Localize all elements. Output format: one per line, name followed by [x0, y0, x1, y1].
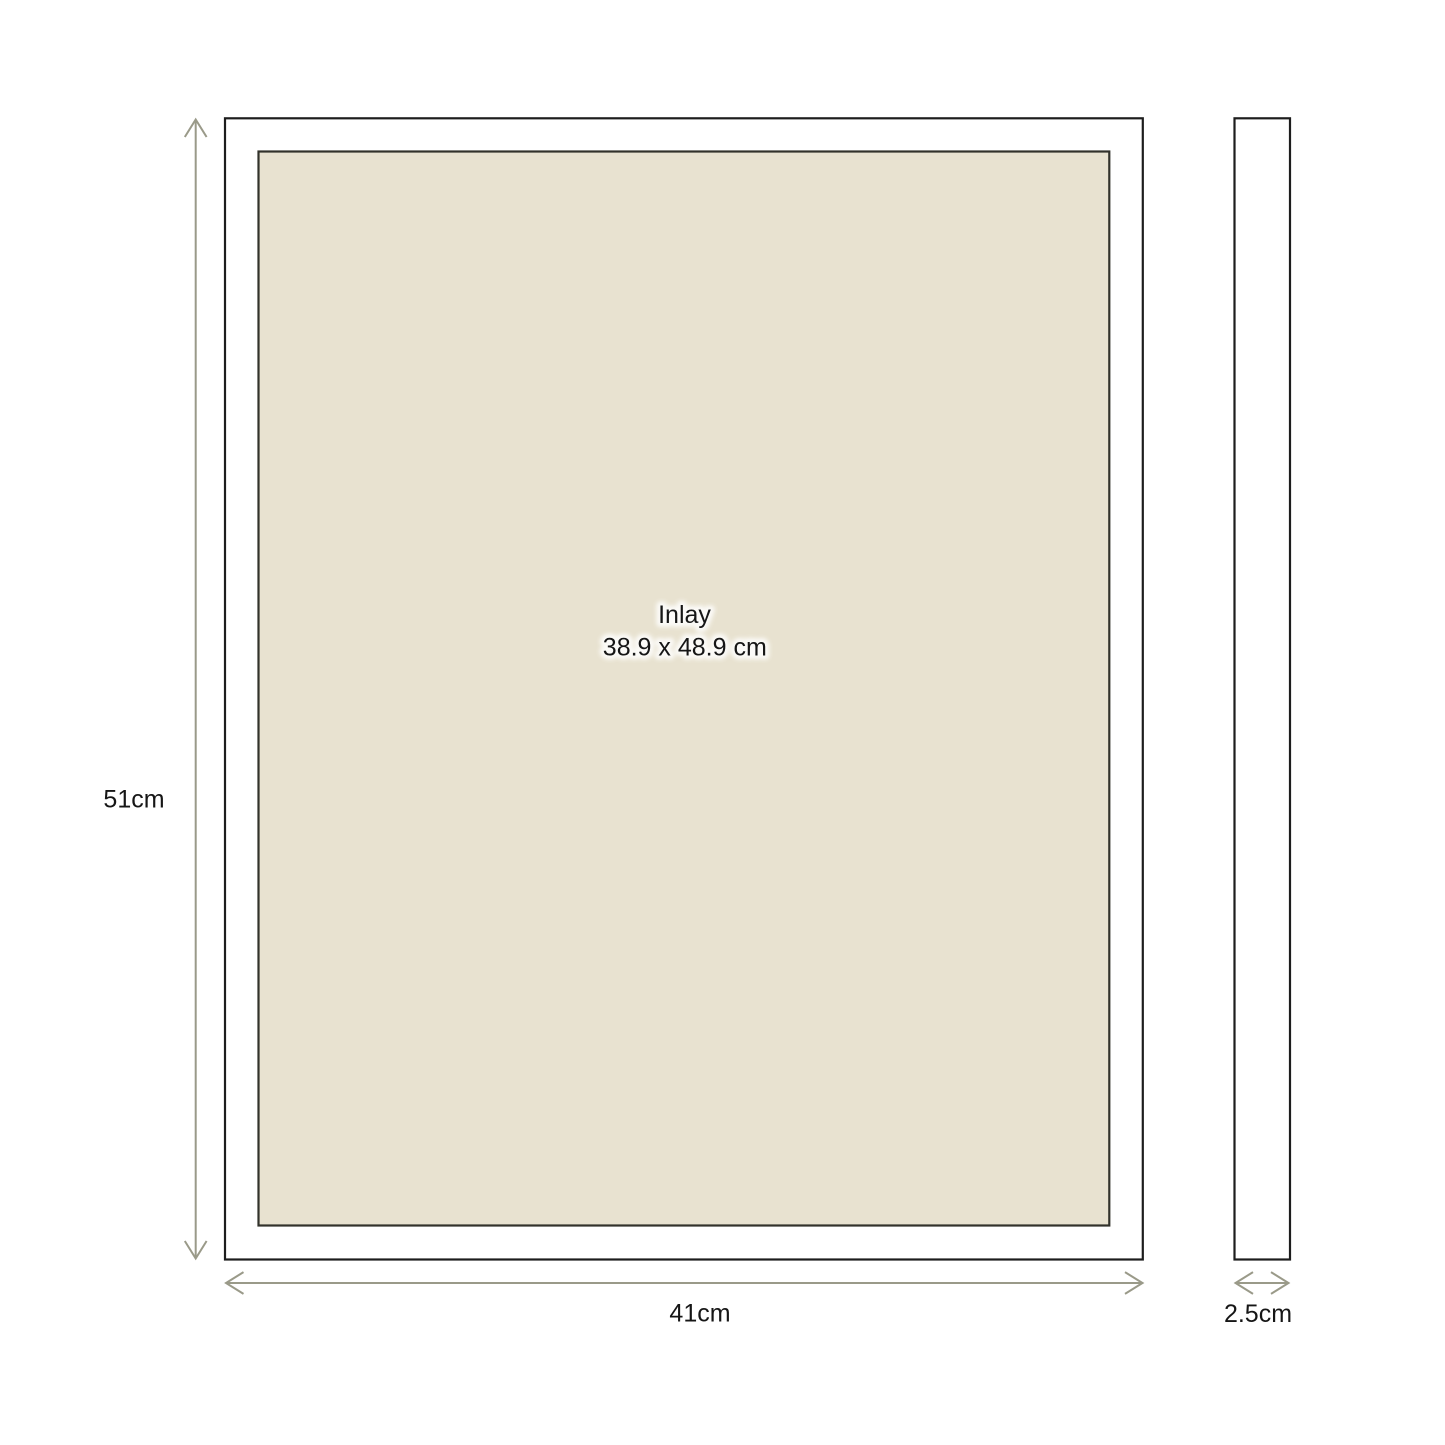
svg-text:41cm: 41cm [669, 1300, 730, 1328]
svg-text:51cm: 51cm [103, 786, 164, 814]
svg-text:38.9 x 48.9 cm: 38.9 x 48.9 cm [603, 634, 767, 662]
svg-text:2.5cm: 2.5cm [1224, 1300, 1292, 1328]
svg-text:Inlay: Inlay [658, 601, 711, 629]
